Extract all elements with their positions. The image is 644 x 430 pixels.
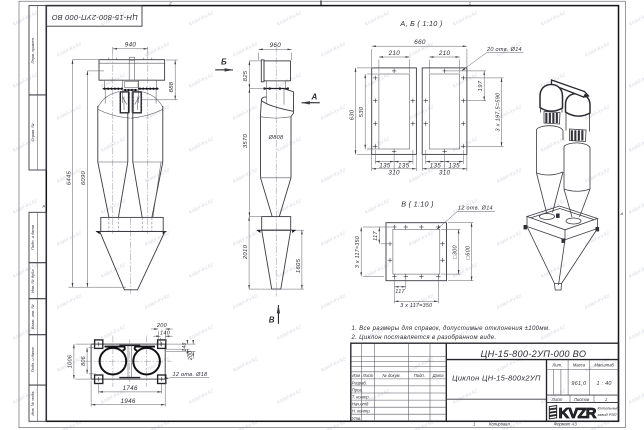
svg-text:117: 117 <box>373 231 379 241</box>
svg-text:Листов: Листов <box>573 397 590 402</box>
svg-text:Копировал: Копировал <box>489 421 510 426</box>
svg-text:6090: 6090 <box>81 170 87 185</box>
svg-text:2010: 2010 <box>243 244 249 260</box>
svg-text:Формат А3: Формат А3 <box>554 421 578 426</box>
svg-text:1 : 40: 1 : 40 <box>596 381 611 387</box>
svg-text:Подп. и дата: Подп. и дата <box>30 347 35 373</box>
svg-text:961,0: 961,0 <box>571 381 586 387</box>
svg-text:3 х 197,5=590: 3 х 197,5=590 <box>495 92 501 132</box>
svg-text:117: 117 <box>395 289 405 295</box>
svg-text:310: 310 <box>439 170 451 177</box>
svg-text:140: 140 <box>182 342 188 351</box>
svg-text:1: 1 <box>469 1 472 6</box>
svg-text:210: 210 <box>388 50 401 57</box>
svg-text:1. Все размеры для справок, до: 1. Все размеры для справок, допустимые о… <box>352 325 551 332</box>
svg-text:135: 135 <box>430 162 442 169</box>
svg-text:12 отв. Ø18: 12 отв. Ø18 <box>173 372 209 378</box>
svg-text:Дата: Дата <box>432 373 445 378</box>
svg-text:Масса: Масса <box>573 363 586 368</box>
svg-text:6445: 6445 <box>66 170 72 185</box>
svg-text:12 отв. Ø14: 12 отв. Ø14 <box>458 206 493 212</box>
svg-text:1746: 1746 <box>123 385 138 392</box>
svg-text:20 отв. Ø14: 20 отв. Ø14 <box>486 47 522 53</box>
svg-text:1: 1 <box>605 397 607 402</box>
svg-text:135: 135 <box>379 162 391 169</box>
svg-text:ЦН-15-800-2УП-000 ВО: ЦН-15-800-2УП-000 ВО <box>51 13 137 22</box>
svg-text:В ( 1:10 ): В ( 1:10 ) <box>401 200 434 209</box>
svg-text:310: 310 <box>388 170 400 177</box>
svg-text:140: 140 <box>160 330 171 336</box>
svg-text:Изм: Изм <box>352 373 360 378</box>
svg-text:Инв. № дубл.: Инв. № дубл. <box>30 268 35 293</box>
svg-text:Ø808: Ø808 <box>268 135 284 141</box>
svg-text:630: 630 <box>349 109 355 120</box>
svg-text:А, Б ( 1:10 ): А, Б ( 1:10 ) <box>399 19 442 28</box>
svg-text:Н. контр.: Н. контр. <box>352 409 371 414</box>
svg-text:1946: 1946 <box>120 398 135 405</box>
svg-text:А: А <box>620 211 624 216</box>
svg-text:Лист: Лист <box>362 373 374 378</box>
svg-text:№ докум.: № докум. <box>382 373 400 378</box>
svg-text:940: 940 <box>125 42 137 49</box>
svg-text:В: В <box>269 316 275 325</box>
svg-text:Нач.отд: Нач.отд <box>352 402 369 407</box>
svg-text:ЦН-15-800-2УП-000 ВО: ЦН-15-800-2УП-000 ВО <box>481 349 587 359</box>
svg-text:135: 135 <box>398 162 410 169</box>
svg-text:□300: □300 <box>452 245 458 259</box>
svg-text:□600: □600 <box>465 245 471 259</box>
svg-text:А: А <box>310 93 317 102</box>
svg-text:1006: 1006 <box>68 354 74 368</box>
svg-text:135: 135 <box>448 162 460 169</box>
svg-text:Котельный: Котельный <box>598 406 620 411</box>
svg-text:660: 660 <box>414 39 426 46</box>
svg-text:960: 960 <box>270 42 282 49</box>
svg-text:Разраб.: Разраб. <box>352 380 367 385</box>
svg-text:825: 825 <box>243 70 249 81</box>
svg-text:Масштаб: Масштаб <box>594 363 614 368</box>
svg-text:888: 888 <box>169 81 175 92</box>
svg-text:197: 197 <box>478 80 484 91</box>
svg-text:210: 210 <box>438 50 451 57</box>
svg-text:200: 200 <box>156 323 168 329</box>
svg-text:Подп.: Подп. <box>414 373 425 378</box>
svg-text:2: 2 <box>168 1 172 6</box>
svg-text:Инв. № подл.: Инв. № подл. <box>30 391 35 416</box>
svg-text:Подп. и дата: Подп. и дата <box>30 224 35 250</box>
svg-text:3 х 117=350: 3 х 117=350 <box>355 236 361 268</box>
svg-text:Лист: Лист <box>551 397 563 402</box>
svg-text:KVZR: KVZR <box>559 406 597 422</box>
svg-text:3 х 117=350: 3 х 117=350 <box>400 303 432 309</box>
svg-text:Циклон ЦН-15-800х2УП: Циклон ЦН-15-800х2УП <box>452 374 541 383</box>
svg-text:завод РЗП: завод РЗП <box>597 412 617 417</box>
svg-text:806: 806 <box>81 355 87 366</box>
svg-text:Справ. №: Справ. № <box>30 123 35 142</box>
svg-text:Утв.: Утв. <box>352 416 362 421</box>
svg-text:530: 530 <box>359 106 365 117</box>
svg-text:1: 1 <box>473 421 475 426</box>
svg-text:Взам. инв. №: Взам. инв. № <box>30 304 35 329</box>
svg-text:200: 200 <box>188 351 194 361</box>
svg-text:Лит.: Лит. <box>551 363 562 368</box>
svg-text:А: А <box>41 204 45 209</box>
svg-text:Перв. примен.: Перв. примен. <box>30 37 35 64</box>
svg-text:3570: 3570 <box>243 133 249 148</box>
svg-text:Т. контр.: Т. контр. <box>352 395 370 400</box>
svg-text:2. Циклон поставляется в разоб: 2. Циклон поставляется в разобранном вид… <box>351 334 497 341</box>
svg-text:Б: Б <box>221 58 227 67</box>
svg-text:Пров.: Пров. <box>352 388 363 393</box>
svg-text:1605: 1605 <box>296 258 302 273</box>
